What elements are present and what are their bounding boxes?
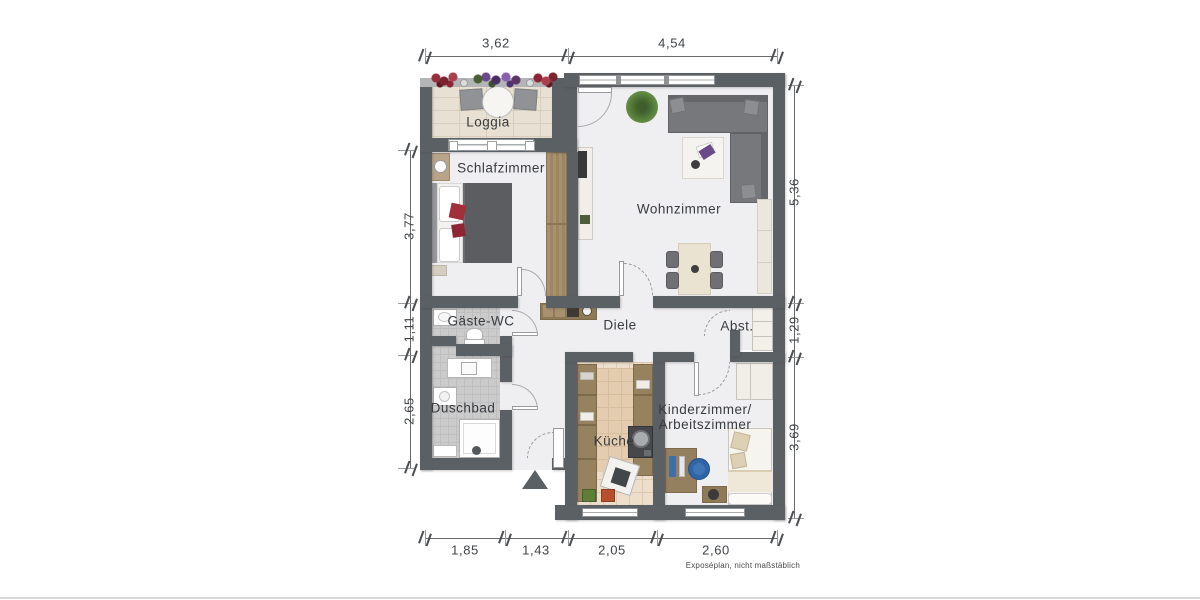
room-label-kinderzimmer-line2: Arbeitszimmer: [658, 417, 752, 432]
floorplan-canvas: Loggia Schlafzimmer Wohnzimmer Gäste-WC …: [0, 0, 1200, 600]
dim-tick: [418, 49, 432, 65]
stove-knob: [644, 450, 651, 456]
kids-pillow: [730, 452, 747, 469]
room-label-kinderzimmer: Kinderzimmer/ Arbeitszimmer: [658, 402, 752, 432]
wall-abst-left: [730, 330, 740, 356]
wall-kinder-top-a: [653, 352, 694, 362]
office-chair-seat: [693, 463, 705, 475]
room-label-abstellraum: Abst.: [720, 319, 753, 334]
room-label-schlafzimmer: Schlafzimmer: [457, 161, 545, 176]
dim-bottom-1: 1,85: [451, 543, 479, 558]
sideboard-divider: [757, 262, 772, 263]
window-post: [525, 141, 535, 151]
dim-tick: [770, 49, 784, 65]
window-kinderzimmer: [685, 508, 745, 517]
dim-tick: [788, 350, 802, 366]
kids-blanket: [728, 470, 772, 492]
dim-tick: [561, 49, 575, 65]
dining-chair: [710, 272, 723, 289]
wall-kueche-kinder: [653, 352, 665, 520]
dim-right-2: 1,29: [787, 316, 802, 344]
kids-bed-foot: [728, 493, 772, 505]
wall-schlaf-wohn: [567, 152, 578, 296]
dim-tick: [788, 296, 802, 312]
wall-middle-b: [546, 296, 620, 308]
wall-kueche-left: [565, 352, 577, 520]
dining-chair: [666, 272, 679, 289]
dim-left-2: 1,11: [402, 316, 417, 343]
counter-item: [580, 372, 594, 380]
cabinet-divider: [577, 394, 597, 396]
red-cushion: [449, 203, 467, 221]
side-table-item: [708, 489, 719, 500]
dim-tick: [650, 531, 664, 547]
bedside-lamp: [434, 160, 447, 173]
potted-plant: [626, 91, 658, 123]
dim-tick: [404, 461, 418, 477]
shelf-divider: [752, 321, 773, 322]
sideboard: [757, 199, 772, 294]
sideboard-divider: [757, 230, 772, 231]
stove-pot: [632, 430, 650, 448]
entrance-door-leaf: [553, 428, 564, 468]
decor-bowl: [691, 160, 700, 169]
storage-shelf: [752, 307, 773, 351]
window-mullion: [664, 75, 669, 85]
dim-left-1: 3,77: [402, 212, 417, 240]
wall-bad-right: [500, 410, 512, 458]
loggia-chair: [513, 88, 537, 111]
window-wohnzimmer: [579, 75, 715, 85]
dim-tick: [404, 296, 418, 312]
bath-basin: [461, 362, 477, 375]
wardrobe-divider: [546, 223, 567, 225]
loggia-table: [482, 86, 514, 118]
counter-item: [580, 412, 594, 421]
dim-top-1: 3,62: [482, 36, 510, 51]
wall-wc-right: [500, 336, 512, 382]
dim-tick: [418, 531, 432, 547]
footnote: Exposéplan, nicht maßstäblich: [600, 561, 800, 570]
sofa-pillow: [740, 183, 756, 199]
page-divider: [0, 597, 1200, 599]
shelf-book: [580, 215, 590, 224]
bath-bench: [433, 445, 457, 457]
dim-right-1: 5,36: [787, 178, 802, 206]
railing-post: [460, 79, 468, 87]
vegetable-crate: [582, 489, 596, 502]
room-label-diele: Diele: [603, 318, 636, 333]
flower-box-red: [533, 71, 560, 88]
wall-bad-bottom: [420, 458, 512, 470]
doorway-patch: [512, 458, 552, 470]
counter-item: [636, 380, 650, 389]
tv: [578, 151, 587, 178]
room-label-kinderzimmer-line1: Kinderzimmer/: [658, 402, 752, 417]
cabinet-divider: [633, 394, 653, 396]
desk-laptop: [679, 456, 685, 477]
window-mullion: [616, 75, 621, 85]
flower-box-red: [430, 71, 460, 88]
desk-monitor: [669, 456, 676, 477]
dim-left-3: 2,65: [402, 397, 417, 425]
dim-tick: [404, 143, 418, 159]
dim-tick: [770, 531, 784, 547]
room-label-loggia: Loggia: [466, 115, 510, 130]
doorway-patch: [694, 352, 730, 362]
dim-line-top: [425, 56, 777, 57]
dim-bottom-3: 2,05: [598, 543, 626, 558]
wall-wc-stub: [432, 336, 456, 346]
wardrobe: [546, 152, 567, 298]
entrance-arrow: [522, 470, 548, 489]
shelf-divider: [752, 336, 773, 337]
window-post: [449, 141, 458, 151]
sofa-pillow: [669, 97, 687, 115]
dim-line-bottom: [425, 538, 777, 539]
flower-box-purple: [472, 70, 525, 89]
shower-head: [472, 446, 481, 455]
window-post: [487, 141, 497, 151]
dining-chair: [710, 251, 723, 268]
wall-kueche-top: [565, 352, 633, 362]
wall-middle-a: [420, 296, 518, 308]
table-bowl: [691, 265, 699, 273]
wall-middle-c: [653, 296, 785, 308]
dim-right-3: 3,69: [787, 423, 802, 451]
dim-bottom-4: 2,60: [702, 543, 730, 558]
room-label-kueche: Küche: [594, 434, 635, 449]
doorway-patch: [500, 382, 512, 410]
kids-wardrobe-divider: [750, 363, 751, 400]
dim-tick: [561, 531, 575, 547]
sofa-pillow: [743, 99, 760, 116]
cabinet-divider: [577, 458, 597, 460]
room-label-duschbad: Duschbad: [431, 401, 496, 416]
doorway-patch: [633, 352, 655, 362]
room-label-gaeste-wc: Gäste-WC: [447, 314, 514, 329]
dim-tick: [498, 531, 512, 547]
dim-bottom-2: 1,43: [522, 543, 550, 558]
kids-wardrobe: [736, 363, 773, 400]
wall-wc-bad: [456, 344, 512, 356]
dim-tick: [788, 511, 802, 527]
bed-bench: [430, 265, 447, 276]
dim-tick: [404, 348, 418, 364]
loggia-chair: [459, 88, 483, 111]
window-kueche: [582, 508, 638, 517]
sink-basin: [611, 467, 631, 487]
cabinet-divider: [577, 424, 597, 426]
dim-top-2: 4,54: [658, 36, 686, 51]
dim-tick: [788, 78, 802, 94]
bed-blanket: [463, 183, 512, 263]
vegetable-crate: [601, 489, 615, 502]
dining-chair: [666, 251, 679, 268]
red-cushion: [451, 223, 466, 238]
room-label-wohnzimmer: Wohnzimmer: [637, 202, 721, 217]
